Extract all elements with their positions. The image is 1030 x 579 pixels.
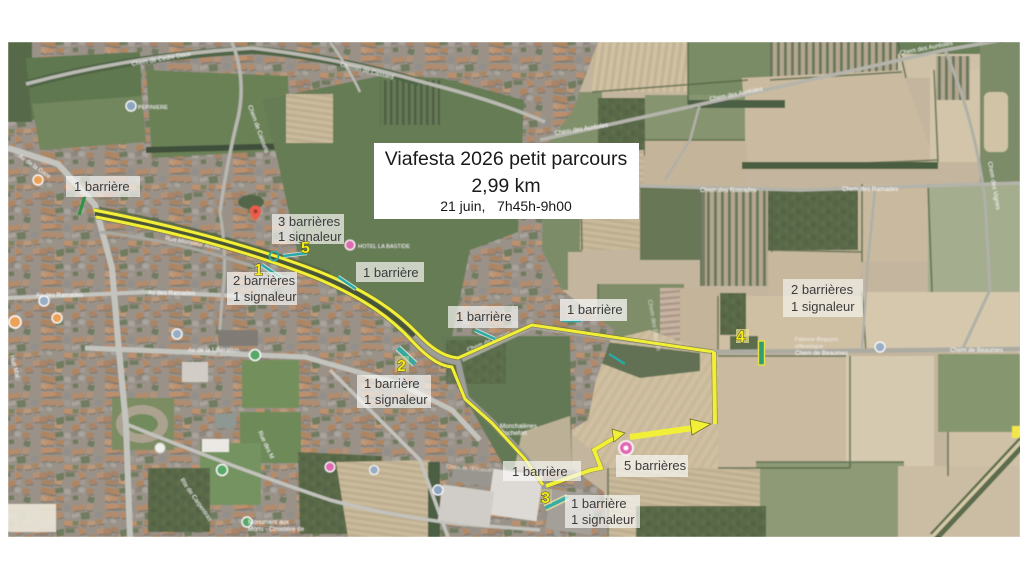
svg-text:Viafesta 2026 petit parcours: Viafesta 2026 petit parcours bbox=[385, 148, 628, 170]
svg-text:1 signaleur: 1 signaleur bbox=[233, 289, 297, 304]
svg-text:2 barrières: 2 barrières bbox=[791, 282, 854, 297]
svg-text:1 barrière: 1 barrière bbox=[512, 464, 568, 479]
svg-text:5: 5 bbox=[301, 240, 310, 257]
svg-text:1 barrière: 1 barrière bbox=[74, 179, 130, 194]
svg-text:1 barrière: 1 barrière bbox=[456, 309, 512, 324]
svg-text:21 juin, 7h45h-9h00: 21 juin, 7h45h-9h00 bbox=[440, 198, 572, 214]
svg-text:1 barrière: 1 barrière bbox=[364, 376, 420, 391]
svg-text:1 signaleur: 1 signaleur bbox=[791, 299, 855, 314]
svg-text:2: 2 bbox=[397, 358, 406, 375]
svg-text:1 signaleur: 1 signaleur bbox=[364, 392, 428, 407]
svg-text:5 barrières: 5 barrières bbox=[624, 458, 687, 473]
svg-text:3: 3 bbox=[541, 490, 550, 507]
svg-text:2,99 km: 2,99 km bbox=[471, 175, 540, 197]
svg-text:1 barrière: 1 barrière bbox=[567, 302, 623, 317]
svg-text:2 barrières: 2 barrières bbox=[233, 273, 296, 288]
svg-text:1 signaleur: 1 signaleur bbox=[571, 512, 635, 527]
svg-text:1: 1 bbox=[254, 262, 263, 279]
svg-text:1 barrière: 1 barrière bbox=[363, 265, 419, 280]
svg-text:1 barrière: 1 barrière bbox=[571, 496, 627, 511]
svg-text:3 barrières: 3 barrières bbox=[278, 214, 341, 229]
svg-text:4: 4 bbox=[736, 329, 745, 346]
svg-text:1 signaleur: 1 signaleur bbox=[278, 229, 342, 244]
